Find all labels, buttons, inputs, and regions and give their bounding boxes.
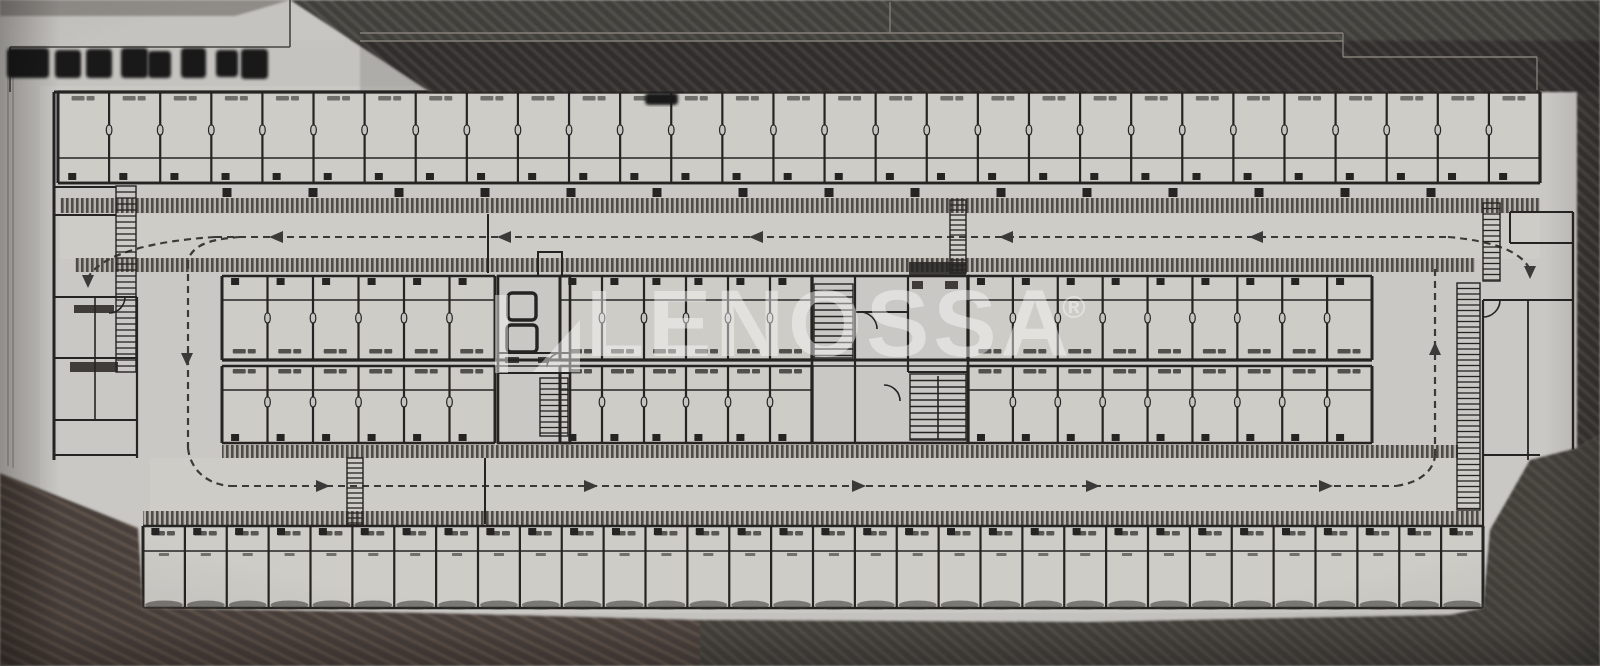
door-tick <box>1246 278 1254 285</box>
door-hinge-oval <box>1235 313 1241 323</box>
mid-lower-units-row <box>222 366 1372 443</box>
door-tick <box>1295 173 1303 180</box>
dark-region-upper-sheen <box>290 0 1600 40</box>
unit-label-smudge <box>429 96 442 101</box>
door-hinge-oval <box>1231 125 1237 135</box>
unit-label-smudge <box>1109 96 1117 101</box>
door-tick <box>821 528 829 535</box>
unit-label-smudge <box>544 531 552 536</box>
door-tick <box>652 434 660 441</box>
unit-label-smudge <box>1083 369 1091 374</box>
door-hinge-oval <box>1010 397 1016 407</box>
unit-mini-dash <box>1331 553 1341 556</box>
unit-label-smudge <box>293 531 301 536</box>
unit-shadow-smudge <box>857 601 895 610</box>
door-tick <box>1499 173 1507 180</box>
unit-label-smudge <box>415 349 428 354</box>
unit-label-smudge <box>1308 349 1316 354</box>
unit-shadow-smudge <box>229 601 267 610</box>
unit-label-smudge <box>460 531 468 536</box>
unit-shadow-smudge <box>899 601 937 610</box>
door-tick <box>1244 173 1252 180</box>
unit-mini-dash <box>996 553 1006 556</box>
unit-shadow-smudge <box>1401 601 1439 610</box>
door-hinge-oval <box>1077 125 1083 135</box>
unit-label-smudge <box>838 96 851 101</box>
unit-label-smudge <box>1400 96 1413 101</box>
unit-mini-dash <box>955 553 965 556</box>
unit-label-smudge <box>240 96 248 101</box>
door-hinge-oval <box>617 125 623 135</box>
unit-mini-dash <box>536 553 546 556</box>
unit-label-smudge <box>415 369 428 374</box>
door-hinge-oval <box>1282 125 1288 135</box>
door-tick <box>413 434 421 441</box>
unit-label-smudge <box>291 96 299 101</box>
unit-label-smudge <box>1006 96 1014 101</box>
door-tick <box>324 173 332 180</box>
door-tick <box>193 528 201 535</box>
unit-label-smudge <box>1293 369 1306 374</box>
unit-mini-dash <box>913 553 923 556</box>
unit-label-smudge <box>1128 369 1136 374</box>
door-hinge-oval <box>413 125 419 135</box>
unit-label-smudge <box>324 349 337 354</box>
unit-label-smudge <box>879 531 887 536</box>
walkway-hatch-band <box>60 198 1540 213</box>
door-hinge-oval <box>1324 313 1330 323</box>
door-tick <box>1240 528 1248 535</box>
unit-mini-dash <box>1206 553 1216 556</box>
door-tick <box>231 434 239 441</box>
unit-mini-dash <box>368 553 378 556</box>
unit-label-smudge <box>444 96 452 101</box>
unit-label-smudge <box>87 96 95 101</box>
unit-label-smudge <box>1158 349 1171 354</box>
unit-mini-dash <box>1290 553 1300 556</box>
unit-label-smudge <box>787 96 800 101</box>
column-nub <box>825 188 834 197</box>
door-tick <box>1336 278 1344 285</box>
unit-shadow-smudge <box>1359 601 1397 610</box>
unit-label-smudge <box>278 349 291 354</box>
small-fixture-smudge <box>74 305 114 313</box>
door-tick <box>947 528 955 535</box>
unit-label-smudge <box>1113 349 1126 354</box>
door-tick <box>1022 434 1030 441</box>
column-nub <box>739 188 748 197</box>
door-hinge-oval <box>720 125 726 135</box>
unit-label-smudge <box>327 96 340 101</box>
door-tick <box>630 173 638 180</box>
door-hinge-oval <box>725 397 731 407</box>
door-tick <box>477 173 485 180</box>
unit-label-smudge <box>1517 96 1525 101</box>
top-units-fill <box>58 92 1540 183</box>
column-nub <box>567 188 576 197</box>
unit-mini-dash <box>620 553 630 556</box>
unit-label-smudge <box>430 349 438 354</box>
door-tick <box>1192 173 1200 180</box>
door-tick <box>1366 528 1374 535</box>
redaction-mark <box>86 49 112 78</box>
door-hinge-oval <box>209 125 215 135</box>
unit-label-smudge <box>1308 369 1316 374</box>
door-hinge-oval <box>1235 397 1241 407</box>
door-tick <box>1291 278 1299 285</box>
watermark-text: LENOSSA <box>586 270 1073 376</box>
unit-label-smudge <box>711 531 719 536</box>
unit-label-smudge <box>1083 349 1091 354</box>
unit-label-smudge <box>1058 96 1066 101</box>
door-tick <box>610 434 618 441</box>
column-nub <box>1083 188 1092 197</box>
door-tick <box>784 173 792 180</box>
unit-label-smudge <box>1247 96 1260 101</box>
unit-shadow-smudge <box>1234 601 1272 610</box>
unit-label-smudge <box>1248 349 1261 354</box>
unit-label-smudge <box>1218 369 1226 374</box>
door-hinge-oval <box>447 313 453 323</box>
column-nub <box>997 188 1006 197</box>
unit-label-smudge <box>795 531 803 536</box>
unit-shadow-smudge <box>313 601 351 610</box>
unit-mini-dash <box>703 553 713 556</box>
door-tick <box>273 173 281 180</box>
door-tick <box>738 528 746 535</box>
unit-label-smudge <box>339 349 347 354</box>
unit-label-smudge <box>904 96 912 101</box>
unit-mini-dash <box>326 553 336 556</box>
walkway-hatch-band <box>222 445 1458 458</box>
unit-label-smudge <box>1466 96 1474 101</box>
unit-label-smudge <box>475 349 483 354</box>
unit-label-smudge <box>248 349 256 354</box>
door-tick <box>277 528 285 535</box>
unit-mini-dash <box>159 553 169 556</box>
door-tick <box>1291 434 1299 441</box>
door-tick <box>459 434 467 441</box>
door-hinge-oval <box>668 125 674 135</box>
door-hinge-oval <box>1100 397 1106 407</box>
unit-mini-dash <box>745 553 755 556</box>
door-tick <box>694 434 702 441</box>
door-hinge-oval <box>1486 125 1492 135</box>
unit-label-smudge <box>293 349 301 354</box>
unit-label-smudge <box>1349 96 1362 101</box>
door-hinge-oval <box>157 125 163 135</box>
unit-label-smudge <box>963 531 971 536</box>
unit-label-smudge <box>502 531 510 536</box>
small-fixture-smudge <box>70 362 118 372</box>
unit-label-smudge <box>1088 531 1096 536</box>
door-tick <box>1112 434 1120 441</box>
dark-region-lower-shade <box>360 41 1600 92</box>
unit-shadow-smudge <box>354 601 392 610</box>
door-tick <box>1112 278 1120 285</box>
door-tick <box>654 528 662 535</box>
unit-label-smudge <box>1196 96 1209 101</box>
unit-label-smudge <box>1248 369 1261 374</box>
unit-label-smudge <box>278 369 291 374</box>
door-tick <box>322 434 330 441</box>
unit-mini-dash <box>829 553 839 556</box>
door-tick <box>1201 434 1209 441</box>
door-tick <box>736 434 744 441</box>
column-nub <box>653 188 662 197</box>
mid-lower-units-fill <box>968 366 1372 443</box>
redaction-mark <box>181 48 206 78</box>
unit-shadow-smudge <box>1192 601 1230 610</box>
door-tick <box>1067 434 1075 441</box>
door-hinge-oval <box>1333 125 1339 135</box>
door-tick <box>1397 173 1405 180</box>
unit-label-smudge <box>531 96 544 101</box>
unit-label-smudge <box>1263 349 1271 354</box>
door-tick <box>368 278 376 285</box>
unit-shadow-smudge <box>773 601 811 610</box>
door-hinge-oval <box>771 125 777 135</box>
unit-label-smudge <box>1211 96 1219 101</box>
unit-shadow-smudge <box>606 601 644 610</box>
door-tick <box>835 173 843 180</box>
door-tick <box>277 434 285 441</box>
door-tick <box>612 528 620 535</box>
door-tick <box>170 173 178 180</box>
door-tick <box>1156 528 1164 535</box>
door-hinge-oval <box>515 125 521 135</box>
door-tick <box>119 173 127 180</box>
unit-label-smudge <box>384 349 392 354</box>
redaction-mark <box>216 50 238 77</box>
door-tick <box>361 528 369 535</box>
unit-label-smudge <box>1160 96 1168 101</box>
unit-shadow-smudge <box>1276 601 1314 610</box>
unit-label-smudge <box>1451 96 1464 101</box>
unit-mini-dash <box>1415 553 1425 556</box>
unit-label-smudge <box>167 531 175 536</box>
unit-label-smudge <box>1423 531 1431 536</box>
floorplan-svg: LENOSSA ® <box>0 0 1600 666</box>
door-tick <box>937 173 945 180</box>
door-hinge-oval <box>1190 397 1196 407</box>
door-tick <box>988 173 996 180</box>
floorplan-photo: LENOSSA ® <box>0 0 1600 666</box>
bottom-units-row <box>143 526 1483 610</box>
door-tick <box>570 528 578 535</box>
door-hinge-oval <box>1128 125 1134 135</box>
unit-label-smudge <box>837 531 845 536</box>
unit-label-smudge <box>802 96 810 101</box>
unit-shadow-smudge <box>1318 601 1356 610</box>
door-hinge-oval <box>566 125 572 135</box>
door-tick <box>1324 528 1332 535</box>
door-hinge-oval <box>1145 397 1151 407</box>
door-tick <box>1090 173 1098 180</box>
unit-label-smudge <box>369 349 382 354</box>
door-tick <box>319 528 327 535</box>
unit-label-smudge <box>1172 531 1180 536</box>
door-tick <box>68 173 76 180</box>
unit-label-smudge <box>546 96 554 101</box>
unit-label-smudge <box>430 369 438 374</box>
unit-label-smudge <box>586 531 594 536</box>
unit-shadow-smudge <box>983 601 1021 610</box>
unit-label-smudge <box>685 96 698 101</box>
door-tick <box>528 528 536 535</box>
unit-mini-dash <box>452 553 462 556</box>
door-tick <box>977 434 985 441</box>
door-tick <box>151 528 159 535</box>
unit-label-smudge <box>628 531 636 536</box>
door-hinge-oval <box>1100 313 1106 323</box>
unit-label-smudge <box>1046 531 1054 536</box>
unit-label-smudge <box>1263 369 1271 374</box>
unit-mini-dash <box>410 553 420 556</box>
unit-label-smudge <box>342 96 350 101</box>
redaction-mark <box>645 93 678 105</box>
unit-label-smudge <box>334 531 342 536</box>
door-tick <box>486 528 494 535</box>
door-tick <box>1039 173 1047 180</box>
unit-label-smudge <box>209 531 217 536</box>
unit-label-smudge <box>138 96 146 101</box>
door-tick <box>1198 528 1206 535</box>
door-tick <box>445 528 453 535</box>
unit-mini-dash <box>201 553 211 556</box>
unit-label-smudge <box>1203 369 1216 374</box>
door-tick <box>733 173 741 180</box>
door-tick <box>375 173 383 180</box>
unit-label-smudge <box>889 96 902 101</box>
redaction-mark <box>7 48 49 78</box>
door-tick <box>322 278 330 285</box>
door-hinge-oval <box>822 125 828 135</box>
door-tick <box>413 278 421 285</box>
door-hinge-oval <box>767 397 773 407</box>
door-tick <box>1157 434 1165 441</box>
unit-label-smudge <box>248 369 256 374</box>
door-tick <box>1031 528 1039 535</box>
unit-label-smudge <box>1130 531 1138 536</box>
unit-mini-dash <box>285 553 295 556</box>
unit-label-smudge <box>233 349 246 354</box>
door-tick <box>1141 173 1149 180</box>
door-tick <box>528 173 536 180</box>
door-tick <box>681 173 689 180</box>
unit-shadow-smudge <box>1066 601 1104 610</box>
door-tick <box>989 528 997 535</box>
unit-label-smudge <box>1465 531 1473 536</box>
unit-mini-dash <box>787 553 797 556</box>
door-hinge-oval <box>1145 313 1151 323</box>
unit-mini-dash <box>243 553 253 556</box>
column-nub <box>1427 188 1436 197</box>
unit-label-smudge <box>991 96 1004 101</box>
unit-mini-dash <box>1248 553 1258 556</box>
unit-label-smudge <box>1113 369 1126 374</box>
unit-shadow-smudge <box>522 601 560 610</box>
unit-mini-dash <box>871 553 881 556</box>
door-hinge-oval <box>356 313 362 323</box>
unit-shadow-smudge <box>815 601 853 610</box>
unit-shadow-smudge <box>1024 601 1062 610</box>
unit-mini-dash <box>1122 553 1132 556</box>
dark-hatched-region <box>1577 92 1600 448</box>
unit-label-smudge <box>1364 96 1372 101</box>
door-hinge-oval <box>975 125 981 135</box>
unit-mini-dash <box>661 553 671 556</box>
unit-label-smudge <box>1158 369 1171 374</box>
column-nub <box>481 188 490 197</box>
unit-shadow-smudge <box>564 601 602 610</box>
unit-label-smudge <box>1214 531 1222 536</box>
door-tick <box>426 173 434 180</box>
unit-label-smudge <box>669 531 677 536</box>
column-nub <box>1169 188 1178 197</box>
unit-label-smudge <box>1256 531 1264 536</box>
door-tick <box>277 278 285 285</box>
unit-shadow-smudge <box>689 601 727 610</box>
unit-label-smudge <box>1415 96 1423 101</box>
unit-label-smudge <box>1145 96 1158 101</box>
unit-label-smudge <box>276 96 289 101</box>
unit-label-smudge <box>495 96 503 101</box>
unit-label-smudge <box>1043 96 1056 101</box>
column-nub <box>395 188 404 197</box>
door-hinge-oval <box>1435 125 1441 135</box>
unit-shadow-smudge <box>731 601 769 610</box>
unit-shadow-smudge <box>438 601 476 610</box>
walkway-hatch-band <box>143 511 1481 525</box>
unit-label-smudge <box>293 369 301 374</box>
unit-label-smudge <box>324 369 337 374</box>
unit-label-smudge <box>1128 349 1136 354</box>
column-nub <box>1255 188 1264 197</box>
unit-label-smudge <box>123 96 136 101</box>
door-hinge-oval <box>310 397 316 407</box>
top-units-row <box>58 92 1540 183</box>
door-hinge-oval <box>265 313 271 323</box>
unit-label-smudge <box>393 96 401 101</box>
unit-shadow-smudge <box>1108 601 1146 610</box>
door-hinge-oval <box>310 313 316 323</box>
door-hinge-oval <box>1179 125 1185 135</box>
unit-label-smudge <box>1313 96 1321 101</box>
door-hinge-oval <box>1026 125 1032 135</box>
unit-label-smudge <box>753 531 761 536</box>
unit-label-smudge <box>384 369 392 374</box>
unit-mini-dash <box>1038 553 1048 556</box>
unit-label-smudge <box>1381 531 1389 536</box>
unit-label-smudge <box>233 369 246 374</box>
door-tick <box>1073 528 1081 535</box>
door-hinge-oval <box>311 125 317 135</box>
door-tick <box>235 528 243 535</box>
unit-label-smudge <box>1298 531 1306 536</box>
unit-label-smudge <box>1203 349 1216 354</box>
unit-label-smudge <box>751 96 759 101</box>
redaction-mark <box>55 50 81 78</box>
door-hinge-oval <box>1279 313 1285 323</box>
door-tick <box>222 173 230 180</box>
unit-label-smudge <box>1173 349 1181 354</box>
unit-shadow-smudge <box>480 601 518 610</box>
unit-label-smudge <box>1502 96 1515 101</box>
unit-label-smudge <box>1004 531 1012 536</box>
door-tick <box>459 278 467 285</box>
unit-label-smudge <box>940 96 953 101</box>
